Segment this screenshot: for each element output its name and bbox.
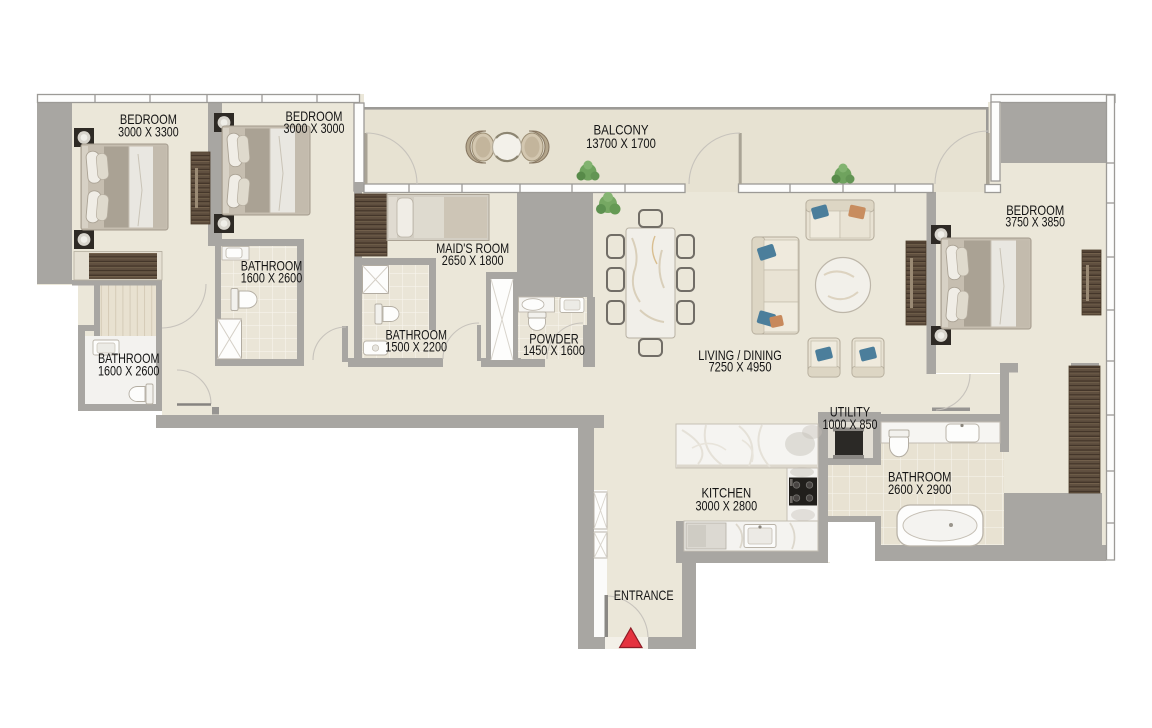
svg-text:3000 X 3300: 3000 X 3300 — [118, 124, 179, 139]
svg-text:7250 X 4950: 7250 X 4950 — [708, 359, 771, 374]
svg-text:1500 X 2200: 1500 X 2200 — [385, 340, 447, 355]
svg-text:13700 X 1700: 13700 X 1700 — [586, 136, 656, 151]
svg-text:1000 X 850: 1000 X 850 — [823, 417, 878, 432]
svg-text:1450 X 1600: 1450 X 1600 — [523, 343, 585, 358]
svg-text:2600 X 2900: 2600 X 2900 — [888, 482, 952, 497]
svg-text:2650 X 1800: 2650 X 1800 — [442, 253, 504, 268]
svg-text:3000 X 2800: 3000 X 2800 — [695, 498, 757, 513]
svg-text:3750 X 3850: 3750 X 3850 — [1005, 215, 1065, 230]
svg-text:1600 X 2600: 1600 X 2600 — [241, 271, 303, 286]
svg-text:3000 X 3000: 3000 X 3000 — [284, 121, 345, 136]
svg-text:1600 X 2600: 1600 X 2600 — [98, 364, 160, 379]
svg-text:ENTRANCE: ENTRANCE — [614, 588, 674, 603]
